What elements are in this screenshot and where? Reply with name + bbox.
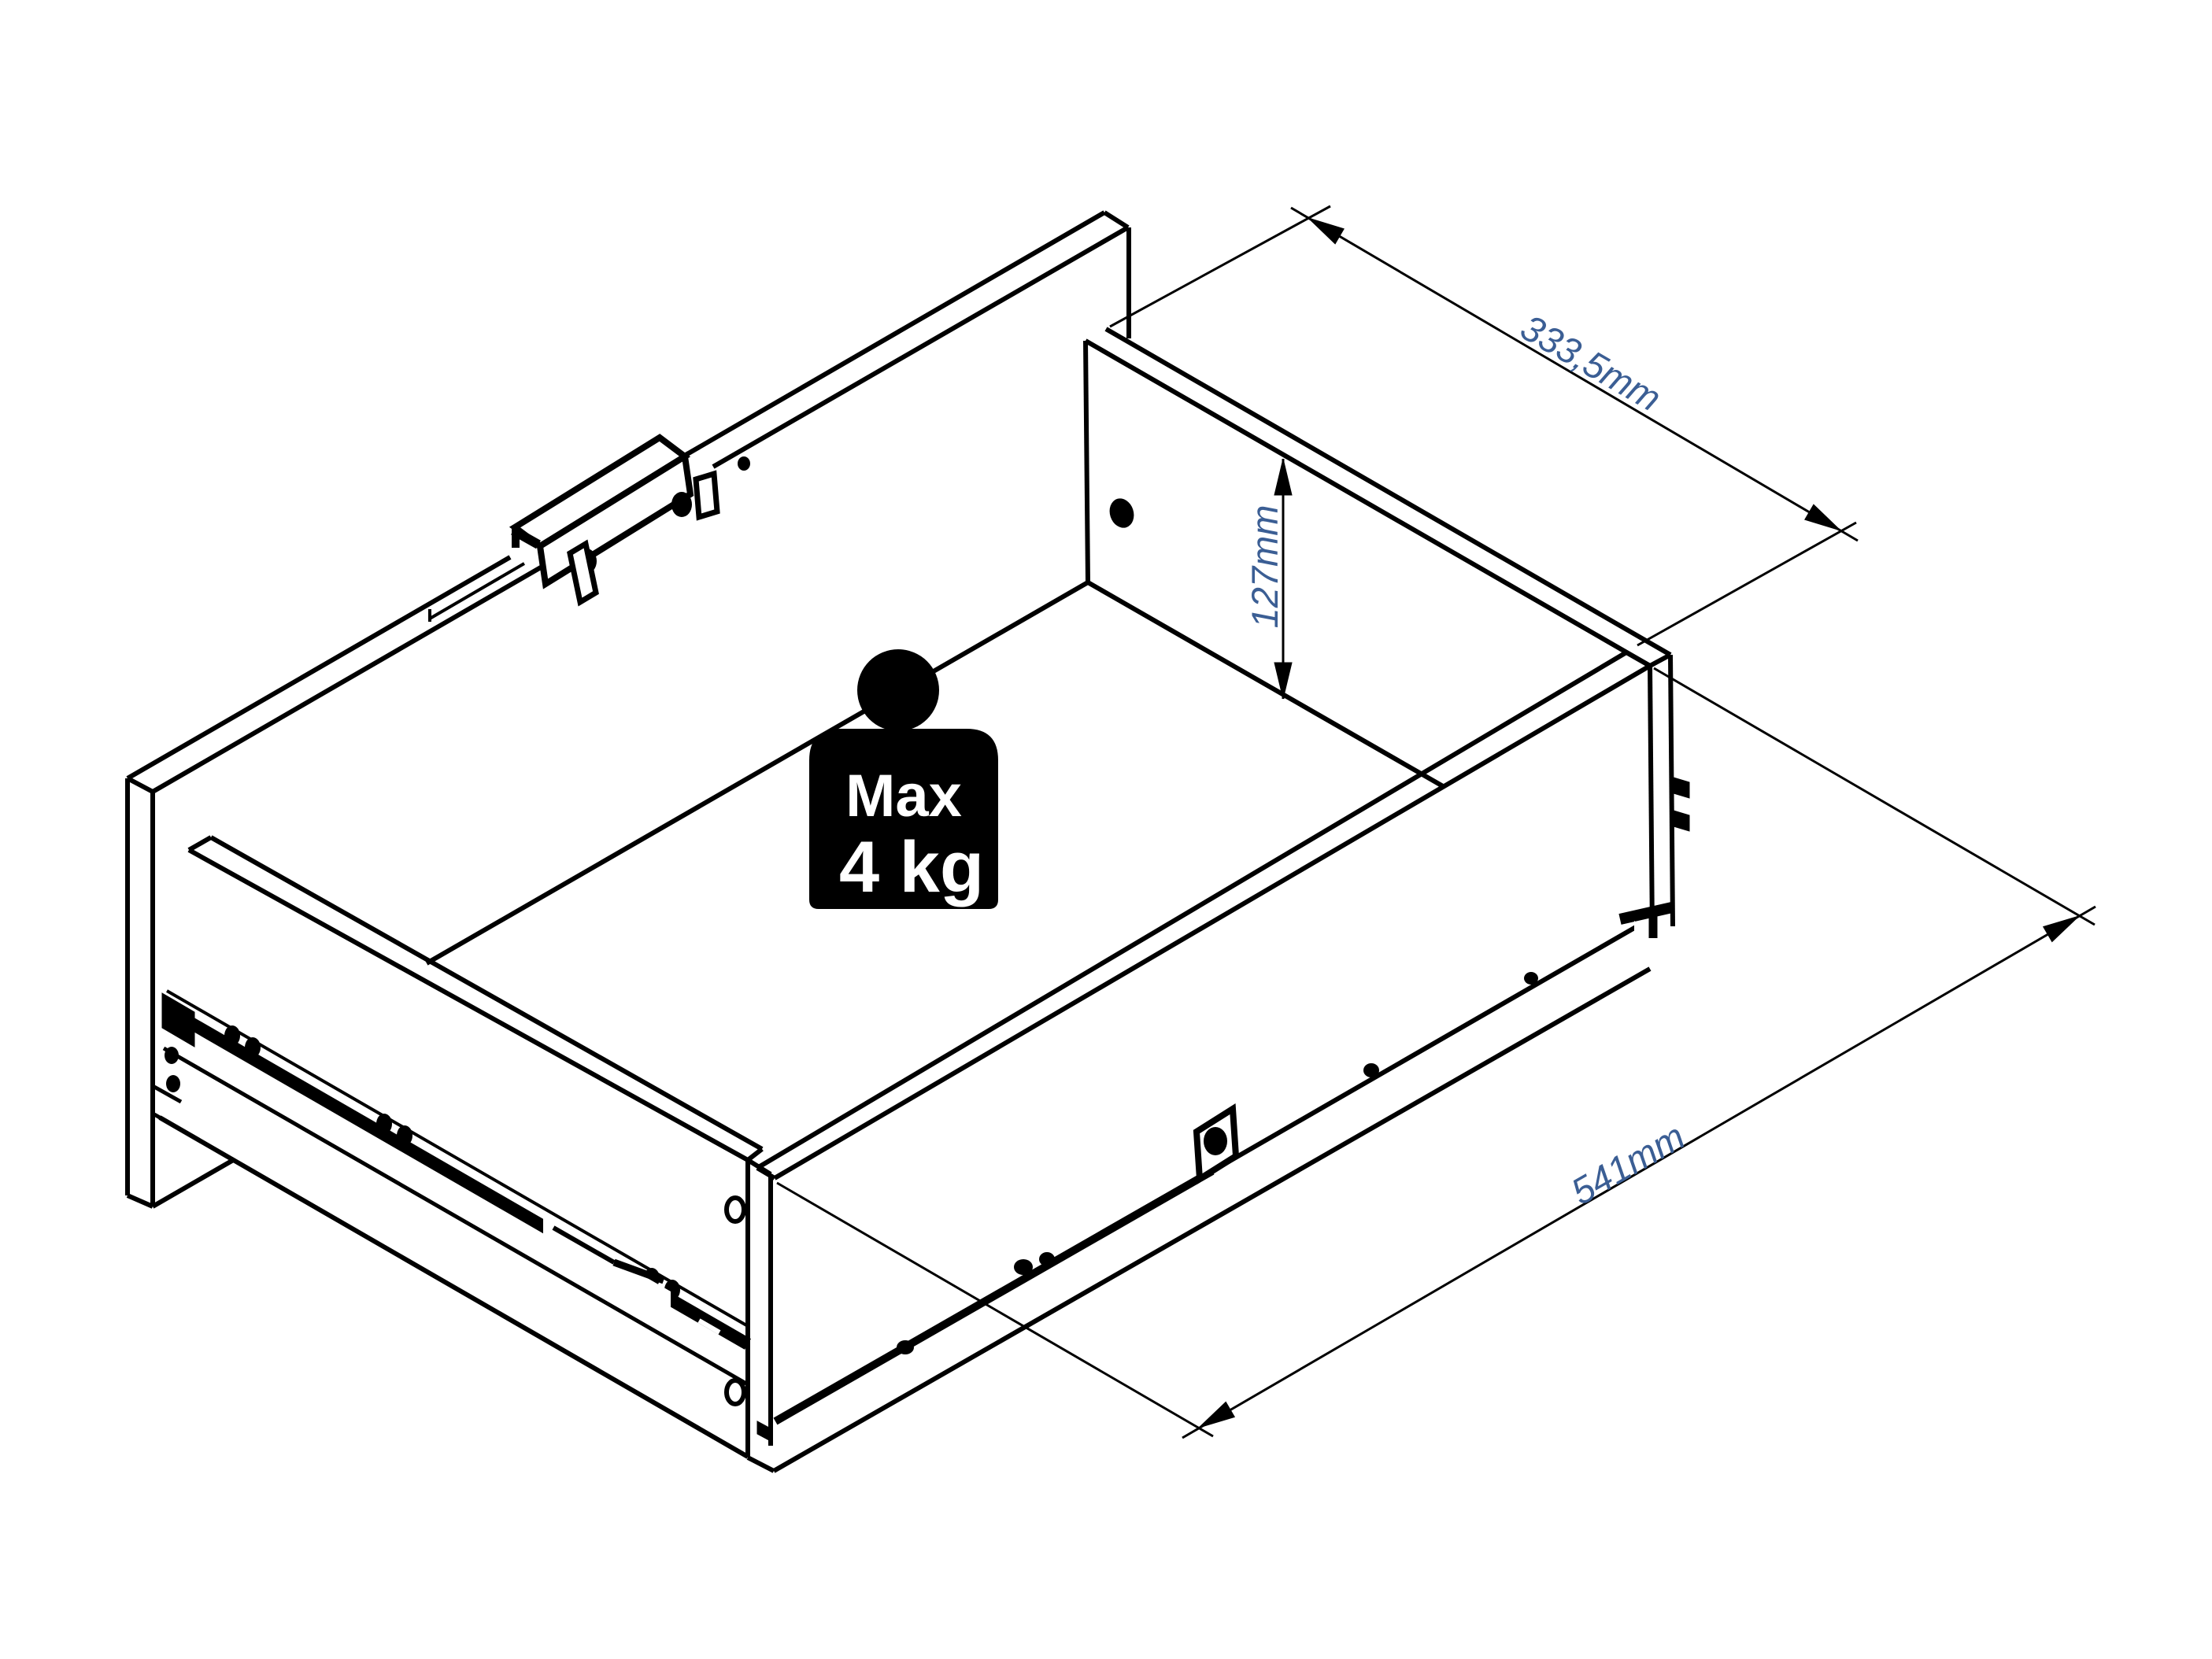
svg-text:Max: Max [845, 763, 962, 829]
svg-text:4 kg: 4 kg [839, 827, 984, 907]
svg-text:127mm: 127mm [1244, 505, 1285, 629]
